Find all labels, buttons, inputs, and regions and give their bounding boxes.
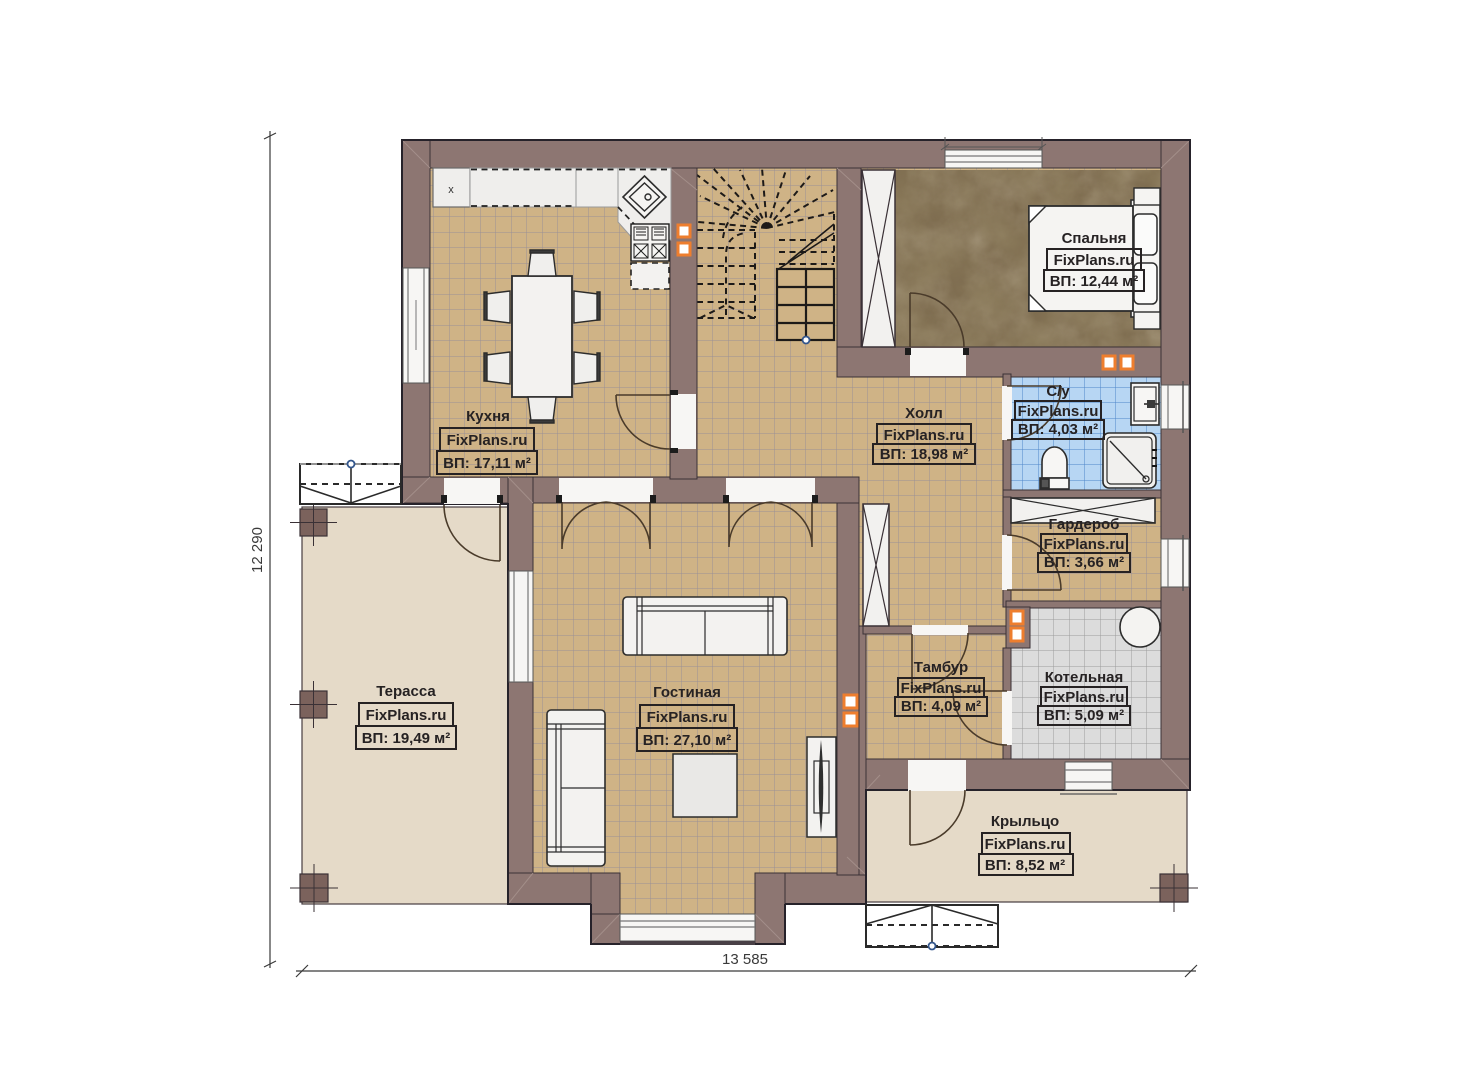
svg-text:ВП: 5,09 м²: ВП: 5,09 м² bbox=[1044, 707, 1124, 724]
svg-text:FixPlans.ru: FixPlans.ru bbox=[447, 432, 528, 449]
svg-text:Холл: Холл bbox=[905, 405, 943, 422]
svg-text:ВП: 27,10 м²: ВП: 27,10 м² bbox=[643, 732, 732, 749]
svg-text:FixPlans.ru: FixPlans.ru bbox=[985, 836, 1066, 853]
svg-text:ВП: 8,52 м²: ВП: 8,52 м² bbox=[985, 857, 1065, 874]
svg-text:FixPlans.ru: FixPlans.ru bbox=[1018, 403, 1099, 420]
svg-text:FixPlans.ru: FixPlans.ru bbox=[647, 709, 728, 726]
svg-text:ВП: 19,49 м²: ВП: 19,49 м² bbox=[362, 730, 451, 747]
svg-text:С/у: С/у bbox=[1046, 383, 1070, 400]
svg-text:Тамбур: Тамбур bbox=[914, 659, 968, 676]
svg-text:ВП: 3,66 м²: ВП: 3,66 м² bbox=[1044, 554, 1124, 571]
svg-text:Крыльцо: Крыльцо bbox=[991, 813, 1059, 830]
svg-text:ВП: 4,03 м²: ВП: 4,03 м² bbox=[1018, 421, 1098, 438]
svg-text:FixPlans.ru: FixPlans.ru bbox=[366, 707, 447, 724]
svg-text:x: x bbox=[448, 184, 454, 196]
svg-text:ВП: 4,09 м²: ВП: 4,09 м² bbox=[901, 698, 981, 715]
svg-text:Кухня: Кухня bbox=[466, 408, 510, 425]
svg-text:ВП: 17,11 м²: ВП: 17,11 м² bbox=[443, 455, 531, 472]
svg-text:FixPlans.ru: FixPlans.ru bbox=[1054, 252, 1135, 269]
svg-text:13 585: 13 585 bbox=[722, 951, 768, 968]
svg-text:12 290: 12 290 bbox=[249, 527, 266, 573]
svg-text:Котельная: Котельная bbox=[1045, 669, 1124, 686]
svg-text:FixPlans.ru: FixPlans.ru bbox=[884, 427, 965, 444]
svg-text:Гостиная: Гостиная bbox=[653, 684, 721, 701]
svg-text:FixPlans.ru: FixPlans.ru bbox=[1044, 689, 1125, 706]
svg-text:FixPlans.ru: FixPlans.ru bbox=[1044, 536, 1125, 553]
svg-text:Терасса: Терасса bbox=[376, 683, 436, 700]
svg-text:FixPlans.ru: FixPlans.ru bbox=[901, 680, 982, 697]
svg-text:Гардероб: Гардероб bbox=[1049, 516, 1120, 533]
svg-text:ВП: 12,44 м²: ВП: 12,44 м² bbox=[1050, 273, 1139, 290]
svg-text:Спальня: Спальня bbox=[1062, 230, 1127, 247]
svg-text:ВП: 18,98 м²: ВП: 18,98 м² bbox=[880, 446, 969, 463]
